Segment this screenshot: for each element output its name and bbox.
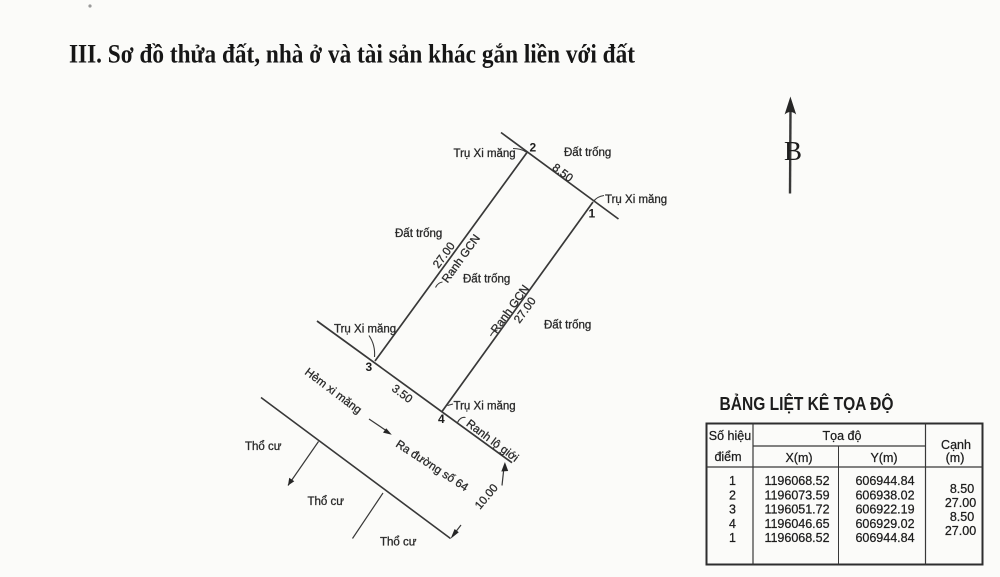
svg-text:Thổ cư: Thổ cư <box>308 496 345 508</box>
svg-text:606938.02: 606938.02 <box>855 488 914 502</box>
svg-text:8.50: 8.50 <box>950 482 974 496</box>
svg-text:Thổ cư: Thổ cư <box>245 441 282 453</box>
svg-text:Đất trống: Đất trống <box>564 147 611 159</box>
svg-text:27.00: 27.00 <box>945 524 976 538</box>
svg-text:Thổ cư: Thổ cư <box>380 537 417 549</box>
svg-text:III. Sơ đồ thửa đất, nhà ở và: III. Sơ đồ thửa đất, nhà ở và tài sản kh… <box>69 40 635 69</box>
svg-text:Đất trống: Đất trống <box>463 274 510 286</box>
svg-text:Trụ Xi măng: Trụ Xi măng <box>605 194 667 206</box>
svg-text:X(m): X(m) <box>785 451 812 465</box>
svg-text:3: 3 <box>729 503 736 517</box>
svg-text:1196046.65: 1196046.65 <box>764 517 829 531</box>
svg-text:1196073.59: 1196073.59 <box>764 488 829 502</box>
svg-text:Ra đường số 64: Ra đường số 64 <box>393 438 470 494</box>
svg-text:3: 3 <box>366 360 373 374</box>
svg-text:1: 1 <box>589 207 596 221</box>
svg-text:Đất trống: Đất trống <box>544 320 591 332</box>
svg-text:2: 2 <box>729 488 736 502</box>
svg-text:1: 1 <box>729 474 736 488</box>
svg-text:Trụ Xi măng: Trụ Xi măng <box>334 324 396 336</box>
svg-text:1: 1 <box>729 531 736 545</box>
svg-text:điểm: điểm <box>714 450 741 464</box>
svg-text:Ranh lộ giới: Ranh lộ giới <box>464 418 521 465</box>
svg-text:Cạnh: Cạnh <box>941 438 971 452</box>
svg-text:1196068.52: 1196068.52 <box>764 474 829 488</box>
svg-text:Hẻm xi măng: Hẻm xi măng <box>302 366 363 416</box>
svg-text:1196068.52: 1196068.52 <box>764 531 829 545</box>
svg-text:606929.02: 606929.02 <box>855 517 914 531</box>
svg-text:4: 4 <box>729 517 736 531</box>
svg-text:Số hiệu: Số hiệu <box>709 429 751 443</box>
svg-text:Đất trống: Đất trống <box>395 228 442 240</box>
svg-text:10.00: 10.00 <box>473 482 501 512</box>
svg-text:B: B <box>784 136 802 166</box>
svg-text:2: 2 <box>530 141 537 155</box>
svg-text:606944.84: 606944.84 <box>855 531 914 545</box>
svg-text:3.50: 3.50 <box>389 383 414 406</box>
svg-text:8.50: 8.50 <box>550 162 575 185</box>
svg-text:Tọa độ: Tọa độ <box>823 429 862 443</box>
svg-text:606922.19: 606922.19 <box>855 503 914 517</box>
svg-text:Trụ Xi măng: Trụ Xi măng <box>454 401 516 413</box>
svg-text:27.00: 27.00 <box>945 496 976 510</box>
svg-text:8.50: 8.50 <box>950 510 974 524</box>
svg-text:606944.84: 606944.84 <box>855 474 914 488</box>
svg-text:Trụ Xi măng: Trụ Xi măng <box>454 148 516 160</box>
svg-text:1196051.72: 1196051.72 <box>764 503 829 517</box>
svg-text:BẢNG LIỆT KÊ TỌA ĐỘ: BẢNG LIỆT KÊ TỌA ĐỘ <box>720 393 894 414</box>
svg-text:(m): (m) <box>946 451 965 465</box>
svg-text:4: 4 <box>438 412 445 426</box>
svg-text:Y(m): Y(m) <box>870 451 897 465</box>
